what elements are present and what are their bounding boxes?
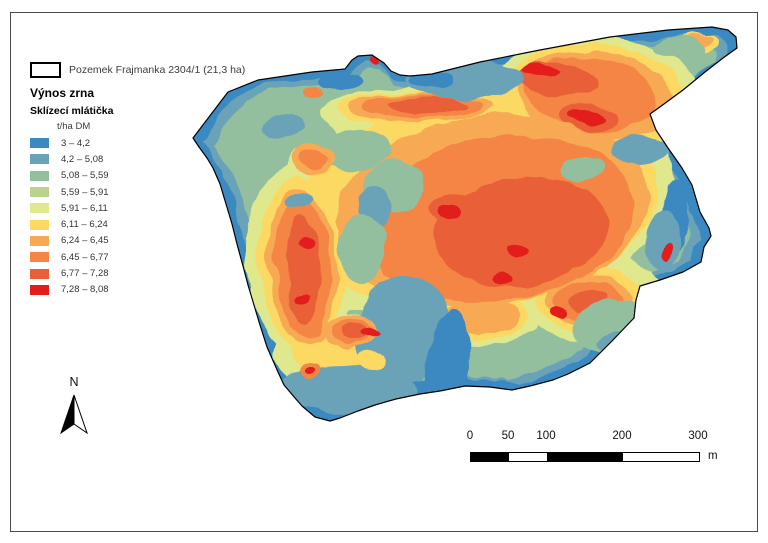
north-arrow-right-half xyxy=(74,395,87,433)
legend-row: 5,59 – 5,91 xyxy=(30,184,245,200)
legend-title: Výnos zrna xyxy=(30,86,245,100)
legend-row: 3 – 4,2 xyxy=(30,135,245,151)
legend-range-label: 6,45 – 6,77 xyxy=(61,252,109,263)
yield-map-page: Pozemek Frajmanka 2304/1 (21,3 ha) Výnos… xyxy=(0,0,768,543)
legend-classes: 3 – 4,2 4,2 – 5,08 5,08 – 5,59 5,59 – 5,… xyxy=(30,135,245,298)
field-symbol-row: Pozemek Frajmanka 2304/1 (21,3 ha) xyxy=(30,62,245,78)
legend-swatch xyxy=(30,252,49,262)
legend-range-label: 7,28 – 8,08 xyxy=(61,284,109,295)
legend-range-label: 5,91 – 6,11 xyxy=(61,203,108,214)
legend-range-label: 5,59 – 5,91 xyxy=(61,187,109,198)
scale-unit-label: m xyxy=(708,450,718,462)
legend-range-label: 6,24 – 6,45 xyxy=(61,235,109,246)
field-boundary-symbol xyxy=(30,62,61,78)
legend-row: 6,11 – 6,24 xyxy=(30,216,245,232)
scale-bar-track xyxy=(470,452,700,462)
legend-range-label: 4,2 – 5,08 xyxy=(61,154,103,165)
field-name-label: Pozemek Frajmanka 2304/1 (21,3 ha) xyxy=(69,64,245,76)
legend-swatch xyxy=(30,187,49,197)
legend-row: 6,77 – 7,28 xyxy=(30,265,245,281)
north-arrow-left-half xyxy=(61,395,74,433)
legend-range-label: 6,77 – 7,28 xyxy=(61,268,109,279)
legend-swatch xyxy=(30,203,49,213)
legend: Pozemek Frajmanka 2304/1 (21,3 ha) Výnos… xyxy=(30,62,245,298)
legend-row: 6,45 – 6,77 xyxy=(30,249,245,265)
legend-row: 6,24 – 6,45 xyxy=(30,233,245,249)
legend-range-label: 3 – 4,2 xyxy=(61,138,90,149)
north-label: N xyxy=(69,375,78,389)
legend-unit-label: t/ha DM xyxy=(57,121,245,132)
legend-swatch xyxy=(30,269,49,279)
legend-subtitle: Sklízecí mlátička xyxy=(30,105,245,117)
legend-swatch xyxy=(30,236,49,246)
legend-swatch xyxy=(30,220,49,230)
legend-swatch xyxy=(30,154,49,164)
scale-tick-300: 300 xyxy=(688,430,707,442)
legend-row: 5,08 – 5,59 xyxy=(30,168,245,184)
legend-range-label: 5,08 – 5,59 xyxy=(61,170,109,181)
legend-swatch xyxy=(30,171,49,181)
scale-tick-200: 200 xyxy=(612,430,631,442)
scale-bar-segment xyxy=(547,453,623,461)
legend-row: 7,28 – 8,08 xyxy=(30,282,245,298)
legend-row: 5,91 – 6,11 xyxy=(30,200,245,216)
scale-tick-100: 100 xyxy=(536,430,555,442)
scale-tick-50: 50 xyxy=(502,430,515,442)
north-arrow: N xyxy=(54,371,94,446)
legend-swatch xyxy=(30,138,49,148)
legend-range-label: 6,11 – 6,24 xyxy=(61,219,108,230)
scale-bar-segment xyxy=(471,453,509,461)
scale-bar: 0 50 100 200 300 m xyxy=(460,430,740,468)
legend-row: 4,2 – 5,08 xyxy=(30,151,245,167)
legend-swatch xyxy=(30,285,49,295)
scale-tick-0: 0 xyxy=(467,430,473,442)
